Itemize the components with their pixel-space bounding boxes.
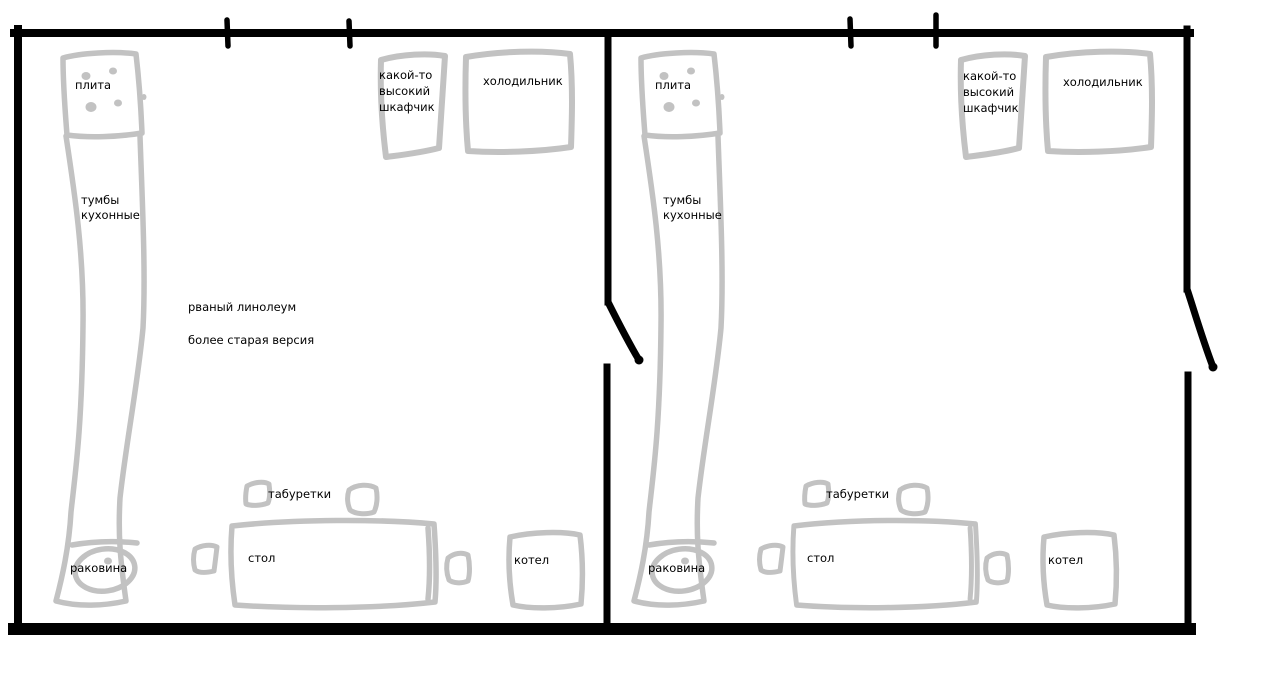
tall-cabinet-label-line2: высокий <box>963 85 1014 99</box>
stools-label: табуретки <box>268 487 331 501</box>
boiler-label: котел <box>1048 553 1083 567</box>
tall-cabinet-label-line2: высокий <box>379 84 430 98</box>
stool-right-4 <box>986 553 1009 582</box>
stove-right <box>641 53 725 137</box>
table-label: стол <box>807 551 834 565</box>
stool-left-3 <box>194 545 218 572</box>
tall-cabinet-label-line3: шкафчик <box>379 100 435 114</box>
floor-note-1: рваный линолеум <box>188 300 296 314</box>
floor-note-2: более старая версия <box>188 333 314 347</box>
cabinets-label-line2: кухонные <box>663 208 722 222</box>
sink-label: раковина <box>70 561 127 575</box>
tall-cabinet-label-line1: какой-то <box>963 69 1016 83</box>
table-label: стол <box>248 551 275 565</box>
fridge-left <box>465 52 572 152</box>
stool-right-2 <box>899 485 928 514</box>
room-left <box>56 52 582 608</box>
stools-label: табуретки <box>826 487 889 501</box>
boiler-right <box>1043 533 1116 608</box>
tall-cabinet-label-line3: шкафчик <box>963 101 1019 115</box>
stove-label: плита <box>655 78 691 92</box>
floor-plan-drawing: плита тумбы кухонные какой-то высокий шк… <box>0 0 1285 679</box>
stove-left <box>63 53 147 137</box>
stool-right-3 <box>760 545 784 572</box>
wall-tick <box>349 21 350 46</box>
stove-label: плита <box>75 78 111 92</box>
boiler-label: котел <box>514 553 549 567</box>
right-door-swing <box>1187 289 1213 367</box>
walls <box>14 15 1218 630</box>
cabinets-label-line2: кухонные <box>81 208 140 222</box>
right-door-swing-end <box>1209 363 1218 372</box>
stool-left-1 <box>246 482 270 505</box>
middle-door-swing <box>608 302 639 360</box>
fridge-right <box>1045 52 1152 152</box>
wall-tick <box>227 20 228 46</box>
boiler-left <box>509 533 582 608</box>
paint-canvas: плита тумбы кухонные какой-то высокий шк… <box>0 0 1285 679</box>
sink-label: раковина <box>648 561 705 575</box>
room-right <box>634 52 1152 608</box>
tall-cabinet-label-line1: какой-то <box>379 68 432 82</box>
cabinets-label-line1: тумбы <box>663 193 701 207</box>
stool-left-4 <box>447 553 470 582</box>
middle-door-swing-end <box>635 356 644 365</box>
cabinets-label-line1: тумбы <box>81 193 119 207</box>
fridge-label: холодильник <box>1063 75 1143 89</box>
stool-left-2 <box>348 485 377 514</box>
wall-tick <box>850 19 851 46</box>
fridge-label: холодильник <box>483 74 563 88</box>
